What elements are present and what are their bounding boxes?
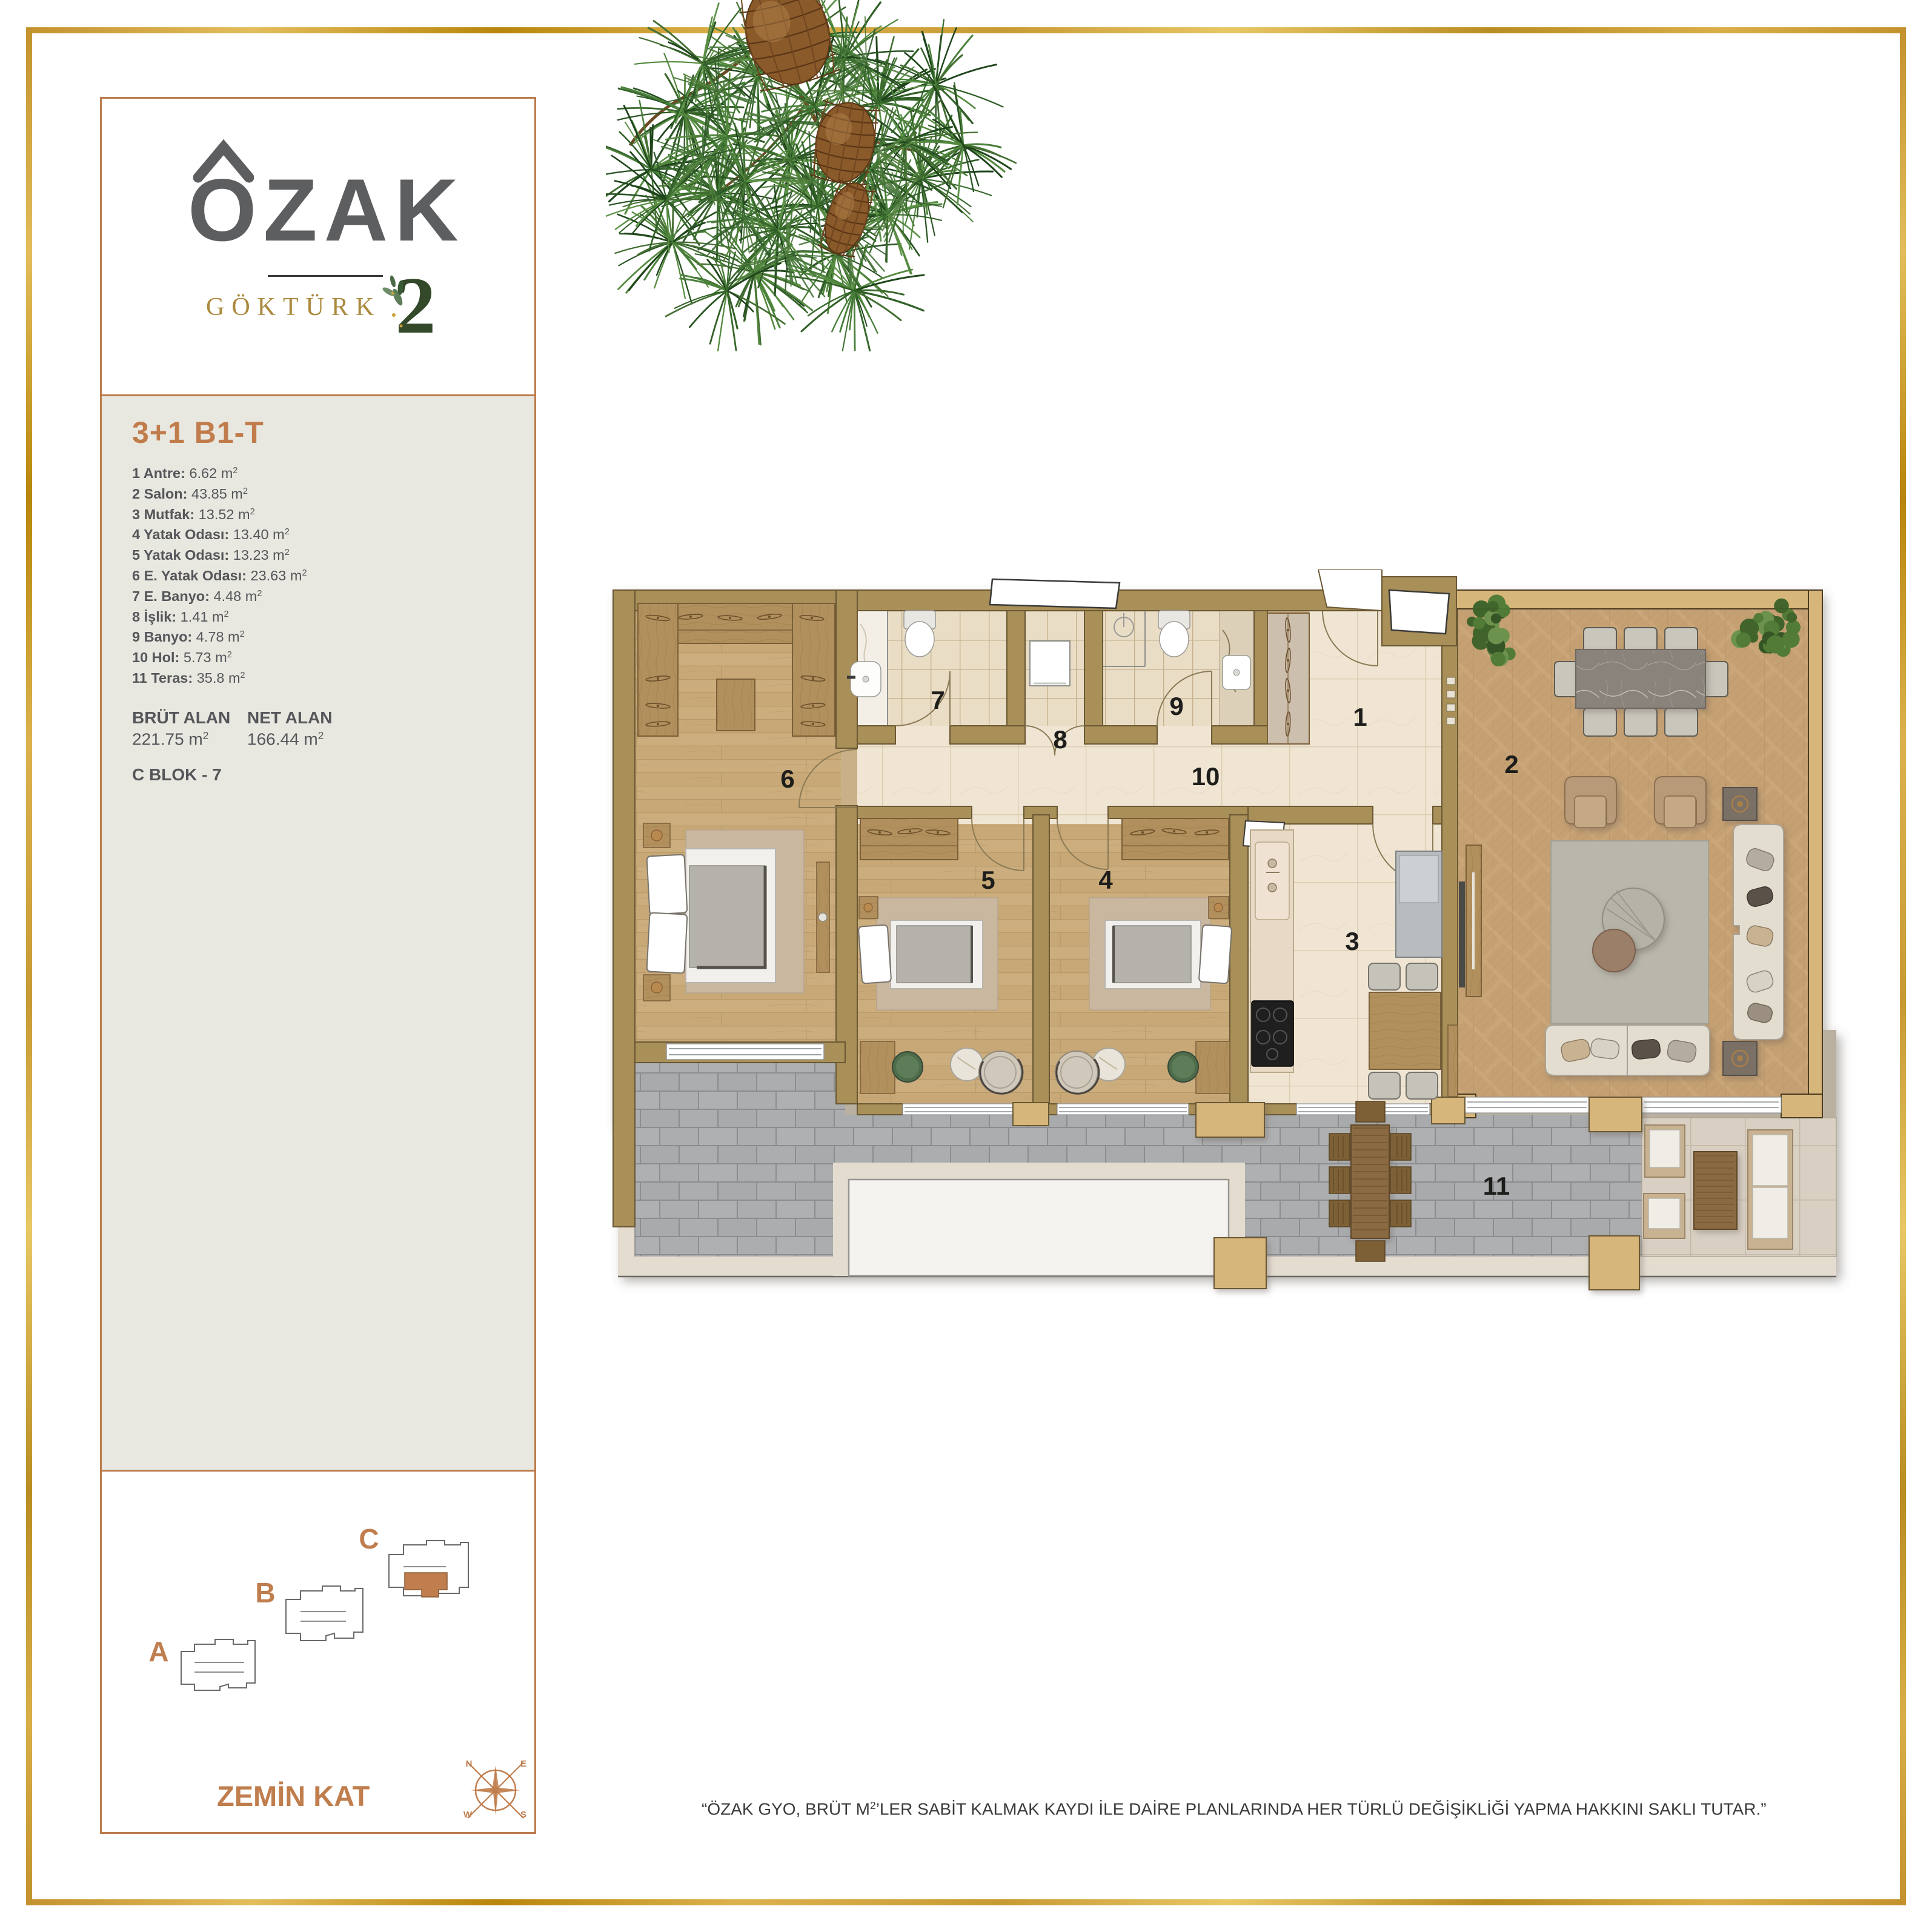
svg-text:7: 7 — [931, 686, 944, 714]
svg-text:9: 9 — [1169, 692, 1183, 720]
svg-text:B: B — [255, 1577, 275, 1608]
svg-text:S: S — [520, 1810, 526, 1820]
svg-text:W: W — [463, 1810, 473, 1820]
svg-text:4: 4 — [1098, 866, 1113, 894]
svg-text:6: 6 — [780, 765, 794, 793]
svg-text:8: 8 — [1053, 725, 1067, 754]
svg-text:C: C — [359, 1523, 379, 1555]
svg-text:5: 5 — [981, 866, 995, 894]
svg-text:E: E — [520, 1759, 526, 1769]
svg-text:1: 1 — [1353, 703, 1367, 731]
svg-text:A: A — [148, 1636, 168, 1667]
svg-text:10: 10 — [1192, 762, 1220, 791]
svg-text:2: 2 — [1504, 750, 1518, 778]
svg-text:11: 11 — [1483, 1172, 1510, 1200]
svg-text:3: 3 — [1345, 927, 1359, 955]
svg-text:N: N — [466, 1759, 473, 1769]
